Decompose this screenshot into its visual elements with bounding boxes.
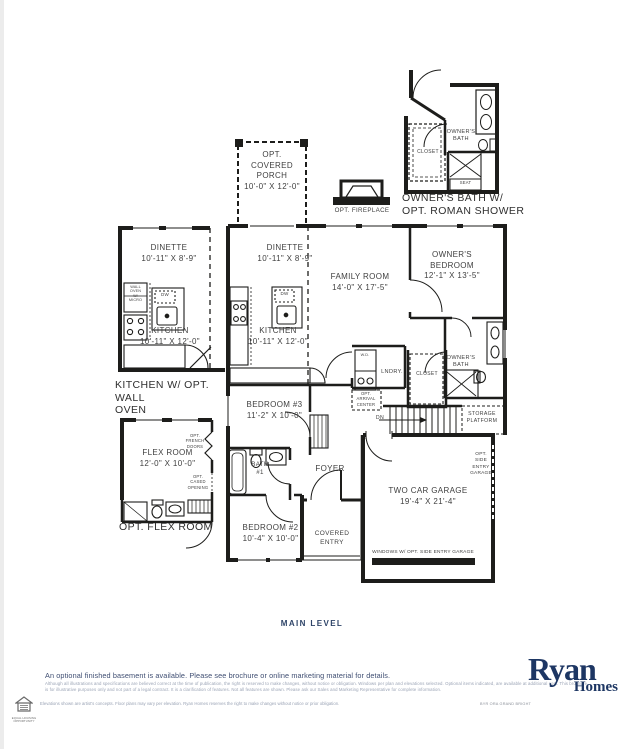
- label-stairs-down: DN: [373, 415, 387, 422]
- equal-housing-text: EQUAL HOUSING OPPORTUNITY: [11, 717, 37, 724]
- label-family-room: FAMILY ROOM 14'-0" X 17'-5": [310, 272, 410, 293]
- label-opt-side-entry-garage: OPT. SIDE ENTRY GARAGE: [466, 452, 496, 477]
- label-dw: DW: [275, 291, 294, 297]
- label-storage-platform: STORAGE PLATFORM: [459, 411, 505, 425]
- basement-note: An optional finished basement is availab…: [45, 671, 390, 680]
- ryan-homes-logo: Ryan Homes: [528, 656, 622, 696]
- label-covered-entry: COVERED ENTRY: [303, 530, 361, 547]
- label-owners-bedroom: OWNER'S BEDROOM 12'-1" X 13'-5": [412, 250, 492, 282]
- label-owners-bath-main: OWNER'S BATH: [438, 355, 484, 370]
- label-kitchen: KITCHEN 10'-11" X 12'-0": [238, 326, 318, 347]
- caption-owners-bath-option: OWNER'S BATH W/ OPT. ROMAN SHOWER: [402, 192, 527, 217]
- label-kitchen-opt: KITCHEN 10'-11" X 12'-0": [130, 326, 210, 347]
- label-bath1: BATH #1: [243, 461, 277, 477]
- label-washer-dryer: W.D.: [355, 353, 375, 357]
- label-seat: SEAT: [450, 180, 481, 185]
- label-bedroom3: BEDROOM #3 11'-2" X 10'-0": [232, 400, 317, 421]
- fine-print-2: Elevations shown are artist's concepts. …: [40, 701, 339, 706]
- label-closet-opt-bath: CLOSET: [407, 149, 449, 156]
- main-level-caption: MAIN LEVEL: [262, 619, 362, 628]
- label-windows-note: WINDOWS W/ OPT. SIDE ENTRY GARAGE: [370, 550, 476, 556]
- floorplan-drawing: [0, 0, 622, 749]
- label-closet-main: CLOSET: [405, 371, 449, 378]
- label-flex-room: FLEX ROOM 12'-0" X 10'-0": [125, 448, 210, 469]
- equal-housing-icon: [15, 696, 33, 712]
- caption-flex-option: OPT. FLEX ROOM: [119, 521, 229, 534]
- fine-print: Although all illustrations and specifica…: [45, 681, 590, 694]
- label-dw-opt: DW: [155, 292, 175, 298]
- plan-code: BYR ORA GRAND BRIGHT: [480, 702, 531, 706]
- label-opt-cased-opening: OPT. CASED OPENING: [181, 474, 215, 490]
- label-owners-bath-opt: OWNER'S BATH: [438, 129, 484, 144]
- label-wall-oven: WALL OVEN W/ MICRO: [123, 285, 148, 302]
- label-opt-covered-porch: OPT. COVERED PORCH 10'-0" X 12'-0": [238, 150, 306, 192]
- fireplace-icon: [333, 181, 390, 205]
- label-opt-fireplace: OPT. FIREPLACE: [329, 207, 395, 215]
- label-bedroom2: BEDROOM #2 10'-4" X 10'-0": [228, 523, 313, 544]
- label-dinette: DINETTE 10'-11" X 8'-9": [245, 243, 325, 264]
- label-opt-french-doors: OPT. FRENCH DOORS: [178, 433, 212, 449]
- caption-kitchen-option: KITCHEN W/ OPT. WALL OVEN: [115, 379, 240, 417]
- label-laundry: LNDRY.: [376, 369, 408, 376]
- label-dinette-opt: DINETTE 10'-11" X 8'-9": [130, 243, 208, 264]
- floorplan-page: OPT. COVERED PORCH 10'-0" X 12'-0" OPT. …: [0, 0, 622, 749]
- label-foyer: FOYER: [303, 464, 357, 475]
- equal-housing-block: EQUAL HOUSING OPPORTUNITY: [11, 696, 37, 724]
- label-opt-arrival-center: OPT. ARRIVAL CENTER: [350, 391, 382, 407]
- label-two-car-garage: TWO CAR GARAGE 19'-4" X 21'-4": [378, 486, 478, 507]
- garage-opt-windows-bar: [372, 558, 475, 565]
